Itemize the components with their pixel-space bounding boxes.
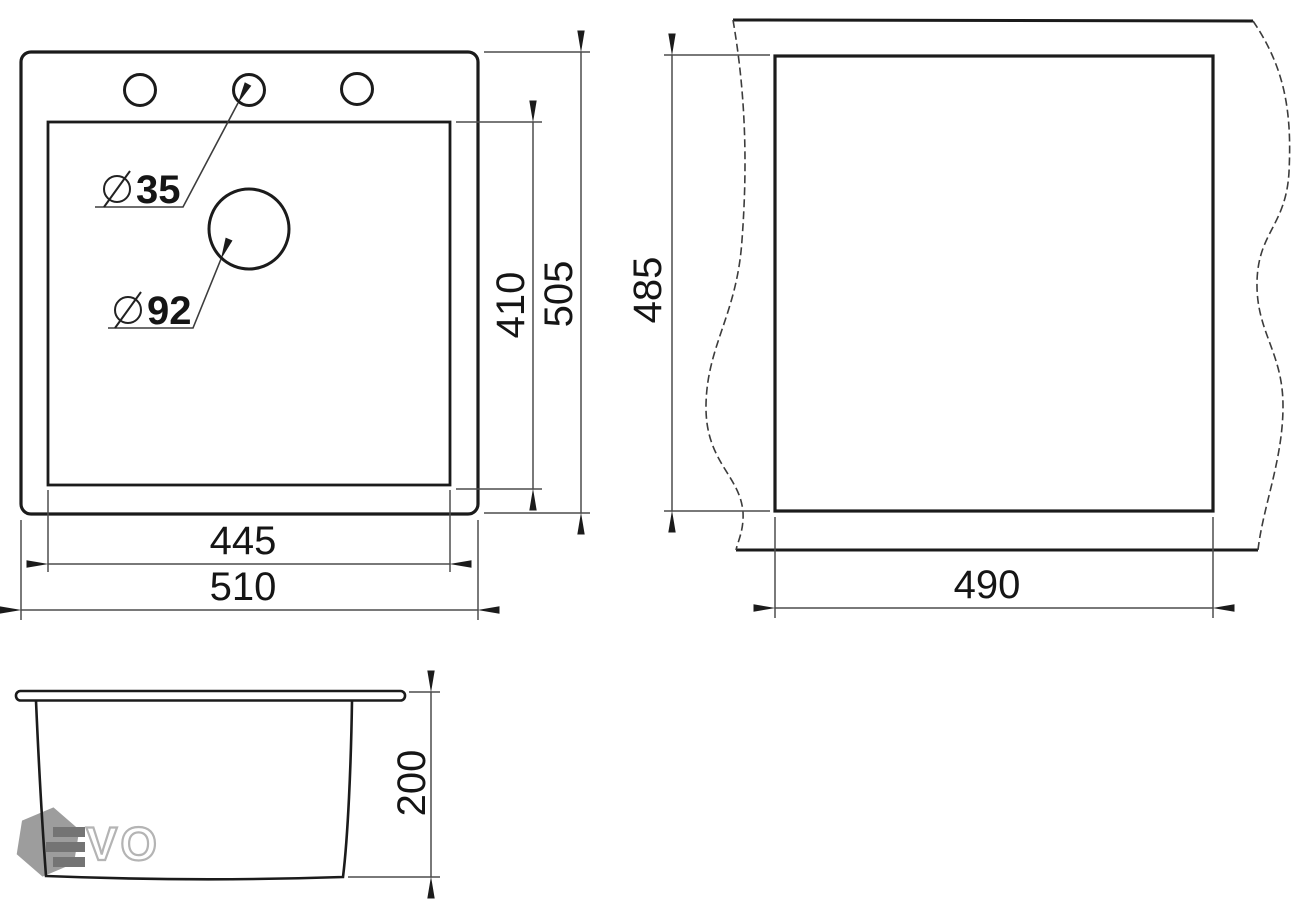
sink-bowl-edge [48,122,450,485]
drain-hole [209,189,289,269]
faucet-hole-center [234,75,265,106]
dimension-cutout-height [664,55,770,511]
countertop-top-edge [733,20,1253,21]
countertop-break-line-right [1253,21,1290,550]
dimension-outer-height-value: 505 [537,261,581,328]
dimension-inner-width-value: 445 [210,519,277,563]
sink-dimension-drawing: VO 35 92 410 [0,0,1308,900]
dimension-inner-height-value: 410 [489,272,533,339]
drain-hole-diameter-label: 92 [147,289,192,333]
dimension-cutout-height-value: 485 [626,257,670,324]
sink-top-view: 35 92 410 505 445 [21,52,590,620]
cutout-opening [775,56,1213,511]
evo-logo: VO [14,803,160,881]
dimension-cutout-width-value: 490 [954,563,1021,607]
sink-flange-profile [16,691,405,701]
technical-drawing-page: VO 35 92 410 [0,0,1308,900]
dimension-depth-value: 200 [390,750,434,817]
faucet-hole-right [342,74,373,105]
countertop-break-line-left [706,20,745,550]
countertop-cutout-view: 485 490 [626,20,1290,618]
faucet-hole-left [125,75,156,106]
diameter-symbol-icon [104,171,130,207]
faucet-hole-diameter-label: 35 [136,168,181,212]
sink-bowl-profile [36,701,352,879]
dimension-outer-width-value: 510 [210,565,277,609]
logo-text: VO [86,817,160,870]
diameter-symbol-icon [115,292,141,328]
